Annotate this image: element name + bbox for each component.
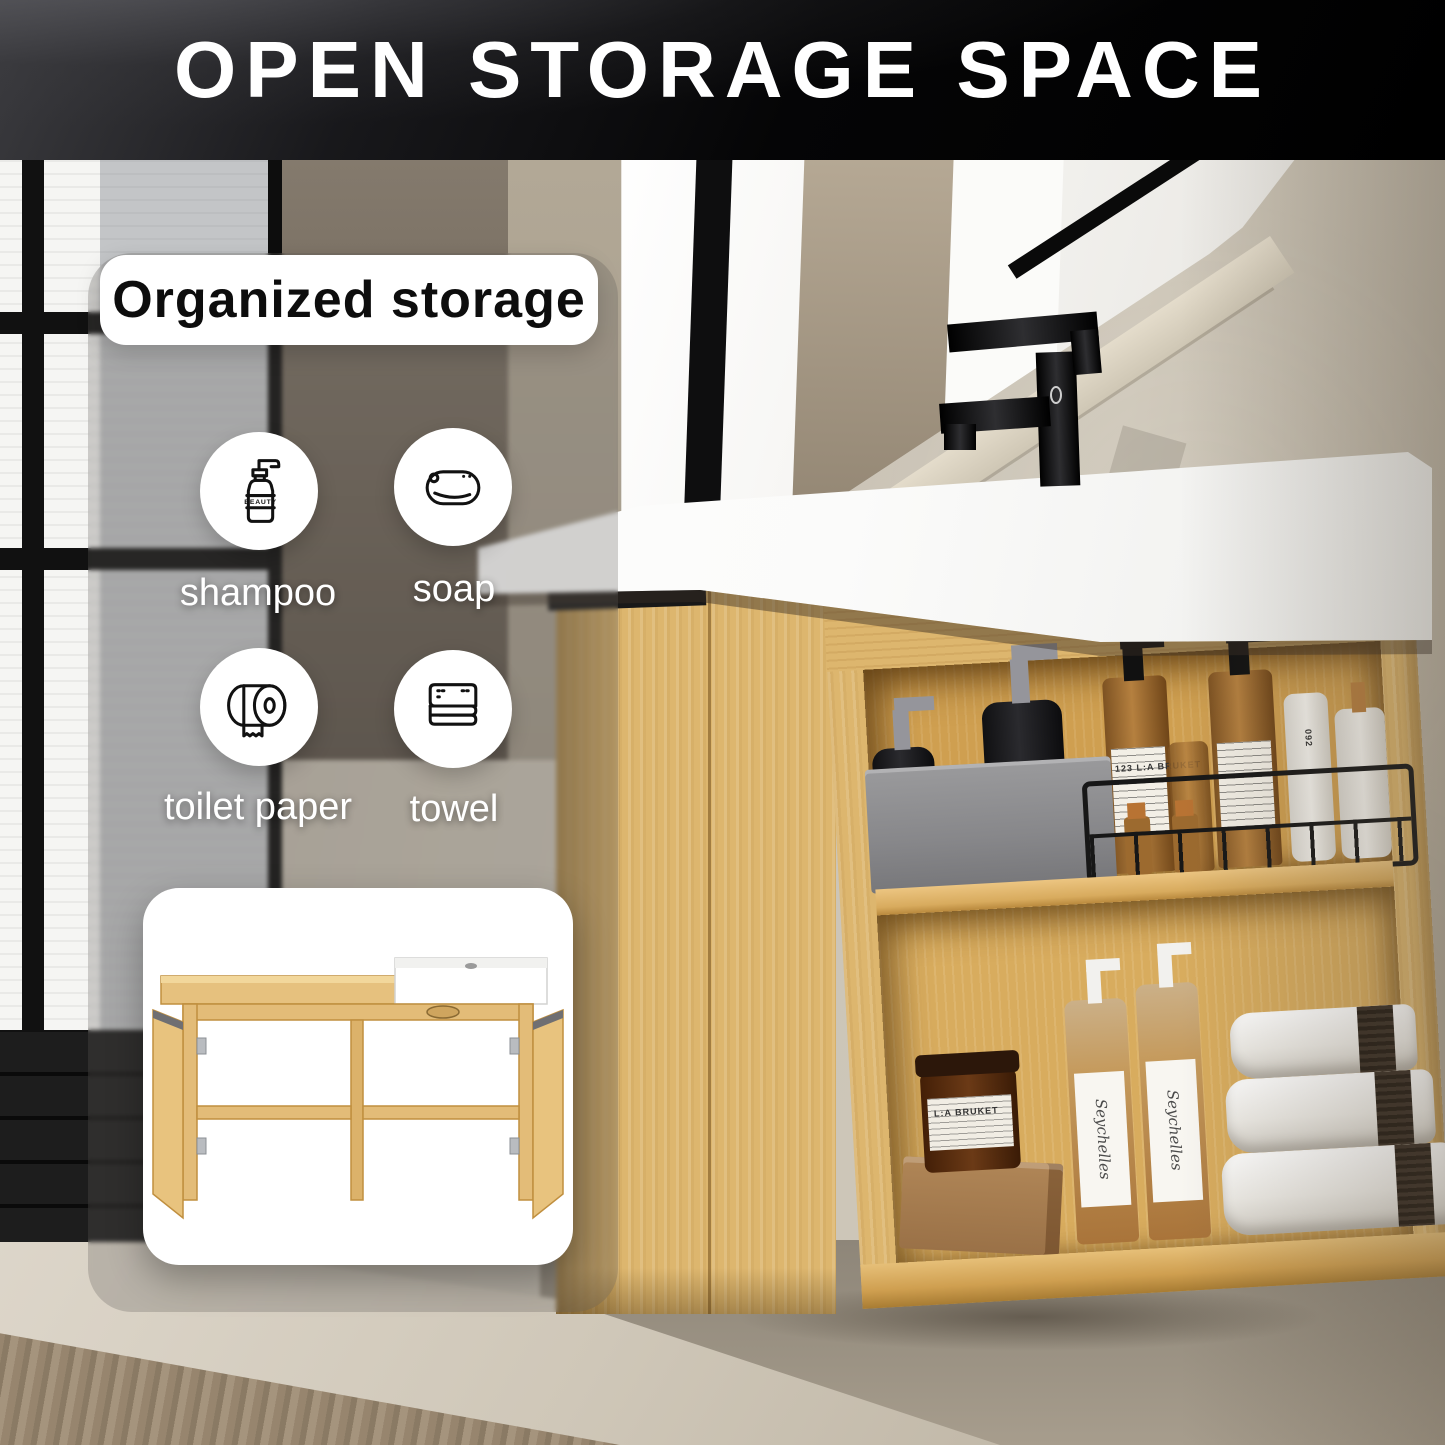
amber-jar: L:A BRUKET xyxy=(920,1068,1021,1173)
towel-badge xyxy=(394,650,512,768)
black-pump-nozzle xyxy=(1120,633,1165,649)
soap-label: soap xyxy=(336,568,572,611)
folded-towel-icon xyxy=(415,671,491,747)
faucet-nozzle xyxy=(944,424,976,450)
white-pump xyxy=(1157,953,1173,988)
soap-badge xyxy=(394,428,512,546)
vanity-open-doors-illustration xyxy=(143,888,573,1265)
door-seam xyxy=(708,584,711,1314)
inset-open-vanity-panel xyxy=(143,888,573,1265)
shampoo-pump-bottle-icon: BEAUTY xyxy=(221,453,297,529)
silver-pump xyxy=(1010,659,1030,704)
white-pump-nozzle xyxy=(1086,958,1121,972)
soap-bottle-label: Seychelles xyxy=(1074,1071,1131,1208)
amber-soap-bottle: Seychelles xyxy=(1064,998,1140,1245)
silver-pump-nozzle xyxy=(894,696,935,712)
soap-bar-icon xyxy=(415,449,491,525)
silver-pump xyxy=(892,709,910,750)
white-pump xyxy=(1086,969,1102,1004)
inset-counter-highlight xyxy=(161,976,397,983)
inset-shelf-left xyxy=(197,1106,351,1119)
inset-top-rail xyxy=(183,1004,533,1020)
inset-open-door-right xyxy=(533,1010,563,1218)
grey-storage-box xyxy=(865,756,1118,894)
inset-drain-cutout xyxy=(427,1006,459,1018)
toilet-paper-badge xyxy=(200,648,318,766)
overlay-title: Organized storage xyxy=(112,270,586,330)
towel-label: towel xyxy=(336,788,572,831)
shampoo-icon-text: BEAUTY xyxy=(244,499,277,506)
black-pump xyxy=(1122,646,1144,681)
jar-lid xyxy=(915,1050,1020,1078)
soap-bottle-label-text: Seychelles xyxy=(1091,1099,1113,1181)
silver-pump-nozzle xyxy=(1011,643,1058,662)
faucet-logo xyxy=(1050,386,1062,404)
marketing-image: 123 L:A BRUKET 092 xyxy=(0,0,1445,1445)
inset-open-door-left xyxy=(153,1010,183,1218)
kraft-box xyxy=(899,1156,1063,1256)
inset-right-wall xyxy=(519,1004,533,1200)
inset-shelf-right xyxy=(363,1106,519,1119)
top-banner: OPEN STORAGE SPACE xyxy=(0,0,1445,160)
inset-faucet-hole xyxy=(465,963,477,969)
shampoo-badge: BEAUTY xyxy=(200,432,318,550)
faucet-handle-end xyxy=(1070,329,1102,375)
inset-left-wall xyxy=(183,1004,197,1200)
jar-label xyxy=(927,1094,1014,1151)
toilet-paper-roll-icon xyxy=(221,669,297,745)
inset-center-divider xyxy=(351,1020,363,1200)
right-wall-shading xyxy=(1180,160,1445,1445)
overlay-title-panel: Organized storage xyxy=(100,255,598,345)
banner-title: OPEN STORAGE SPACE xyxy=(0,14,1445,126)
